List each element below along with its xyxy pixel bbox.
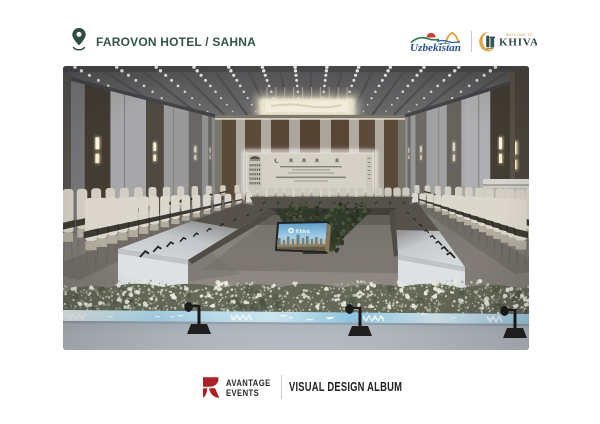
- svg-text:Uzbekistan: Uzbekistan: [410, 43, 461, 53]
- svg-text:KHIVA: KHIVA: [499, 37, 537, 49]
- svg-text:WELCOME TO: WELCOME TO: [506, 33, 533, 37]
